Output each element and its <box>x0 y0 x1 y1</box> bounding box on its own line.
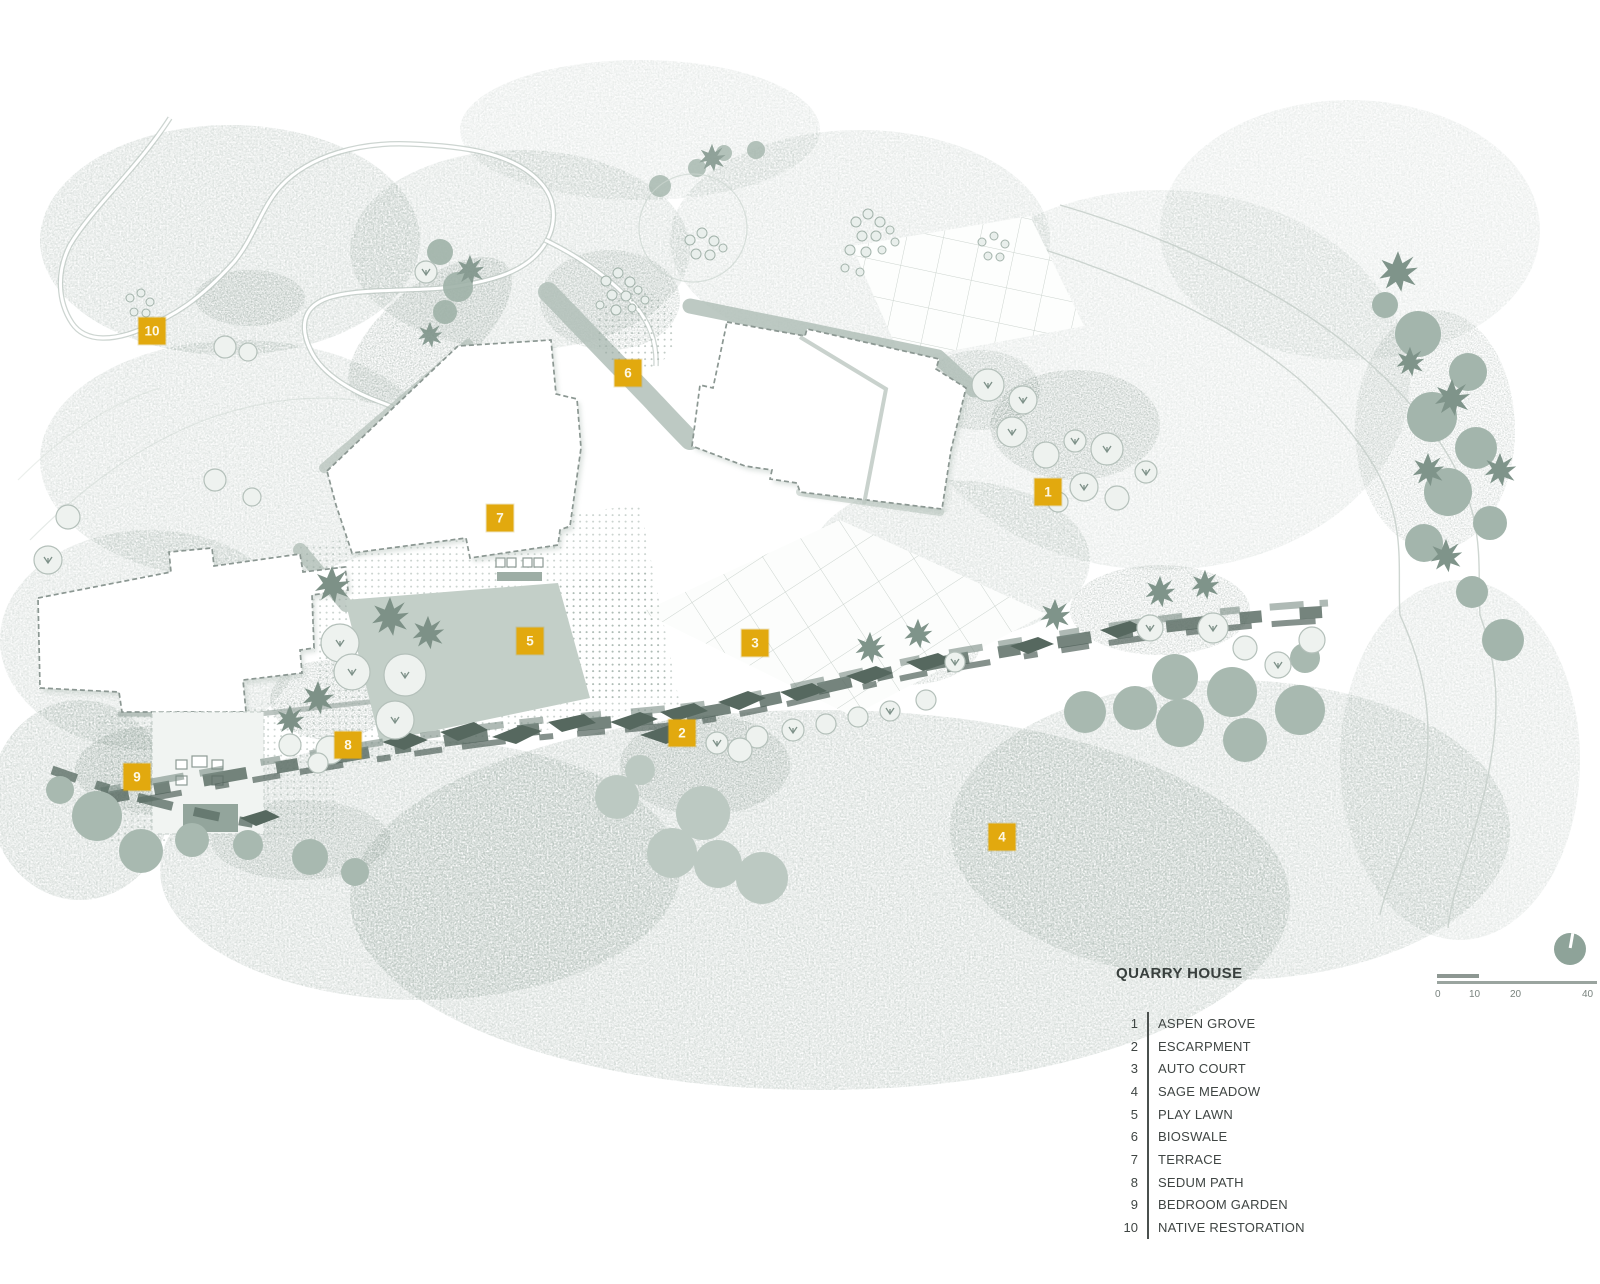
north-arrow-icon <box>1551 930 1588 967</box>
scale-bar-segment <box>1437 974 1479 978</box>
site-plan-drawing <box>0 0 1600 1284</box>
legend-label: NATIVE RESTORATION <box>1147 1216 1305 1239</box>
scale-label-40: 40 <box>1582 989 1593 1000</box>
plan-marker-3: 3 <box>742 630 769 657</box>
legend-row: 3AUTO COURT <box>1116 1057 1305 1080</box>
legend-number: 10 <box>1116 1220 1138 1235</box>
legend-row: 7TERRACE <box>1116 1148 1305 1171</box>
legend-label: ASPEN GROVE <box>1147 1012 1255 1035</box>
plan-marker-4: 4 <box>989 824 1016 851</box>
legend-number: 2 <box>1116 1039 1138 1054</box>
plan-marker-6: 6 <box>615 360 642 387</box>
legend-label: ESCARPMENT <box>1147 1035 1251 1058</box>
legend-number: 6 <box>1116 1129 1138 1144</box>
scale-label-0: 0 <box>1435 989 1441 1000</box>
legend-row: 9BEDROOM GARDEN <box>1116 1194 1305 1217</box>
legend-row: 4SAGE MEADOW <box>1116 1080 1305 1103</box>
legend-row: 10NATIVE RESTORATION <box>1116 1216 1305 1239</box>
legend-number: 9 <box>1116 1197 1138 1212</box>
legend-row: 2ESCARPMENT <box>1116 1035 1305 1058</box>
legend-label: PLAY LAWN <box>1147 1103 1233 1126</box>
legend-row: 5PLAY LAWN <box>1116 1103 1305 1126</box>
plan-marker-5: 5 <box>517 628 544 655</box>
scale-label-10: 10 <box>1469 989 1480 1000</box>
legend-label: AUTO COURT <box>1147 1057 1246 1080</box>
legend-row: 1ASPEN GROVE <box>1116 1012 1305 1035</box>
legend-label: SAGE MEADOW <box>1147 1080 1260 1103</box>
legend-label: TERRACE <box>1147 1148 1222 1171</box>
scale-label-20: 20 <box>1510 989 1521 1000</box>
plan-marker-10: 10 <box>139 318 166 345</box>
legend-label: BEDROOM GARDEN <box>1147 1194 1288 1217</box>
page-title: QUARRY HOUSE <box>1116 965 1243 982</box>
legend-row: 8SEDUM PATH <box>1116 1171 1305 1194</box>
plan-marker-7: 7 <box>487 505 514 532</box>
plan-marker-8: 8 <box>335 732 362 759</box>
legend: QUARRY HOUSE 1ASPEN GROVE2ESCARPMENT3AUT… <box>1116 965 1243 982</box>
legend-label: SEDUM PATH <box>1147 1171 1244 1194</box>
legend-number: 3 <box>1116 1061 1138 1076</box>
legend-number: 8 <box>1116 1175 1138 1190</box>
legend-list: 1ASPEN GROVE2ESCARPMENT3AUTO COURT4SAGE … <box>1116 1012 1305 1239</box>
plan-marker-1: 1 <box>1035 479 1062 506</box>
legend-number: 4 <box>1116 1084 1138 1099</box>
legend-label: BIOSWALE <box>1147 1125 1227 1148</box>
legend-number: 7 <box>1116 1152 1138 1167</box>
legend-number: 1 <box>1116 1016 1138 1031</box>
plan-marker-2: 2 <box>669 720 696 747</box>
scale-bar-line <box>1437 981 1597 984</box>
plan-marker-9: 9 <box>124 764 151 791</box>
site-plan-page: 12345678910 QUARRY HOUSE 1ASPEN GROVE2ES… <box>0 0 1600 1284</box>
legend-number: 5 <box>1116 1107 1138 1122</box>
legend-row: 6BIOSWALE <box>1116 1125 1305 1148</box>
